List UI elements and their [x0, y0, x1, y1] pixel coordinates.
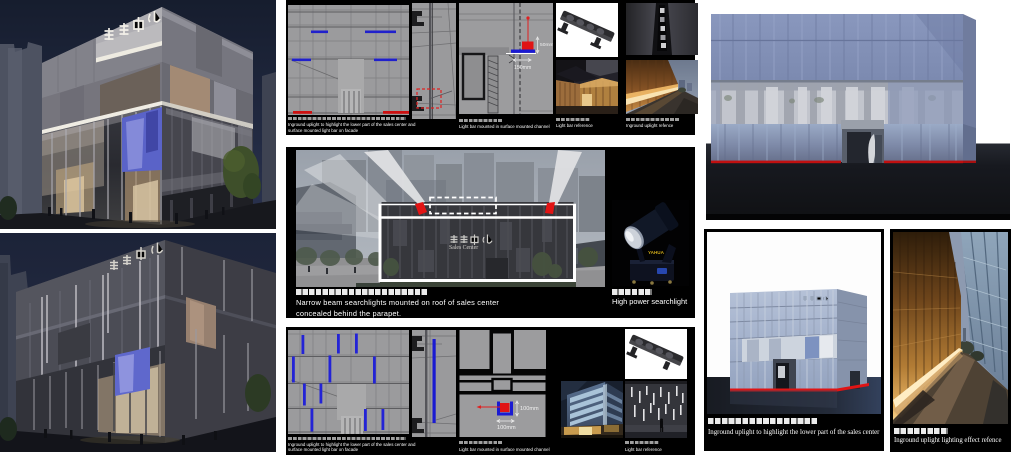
svg-text:YAHUA: YAHUA — [648, 250, 665, 255]
svg-text:150mm: 150mm — [514, 65, 531, 71]
svg-text:100mm: 100mm — [520, 406, 539, 412]
svg-text:100mm: 100mm — [497, 425, 516, 431]
svg-text:Sales Center: Sales Center — [449, 245, 478, 251]
svg-text:50mm: 50mm — [540, 42, 553, 48]
